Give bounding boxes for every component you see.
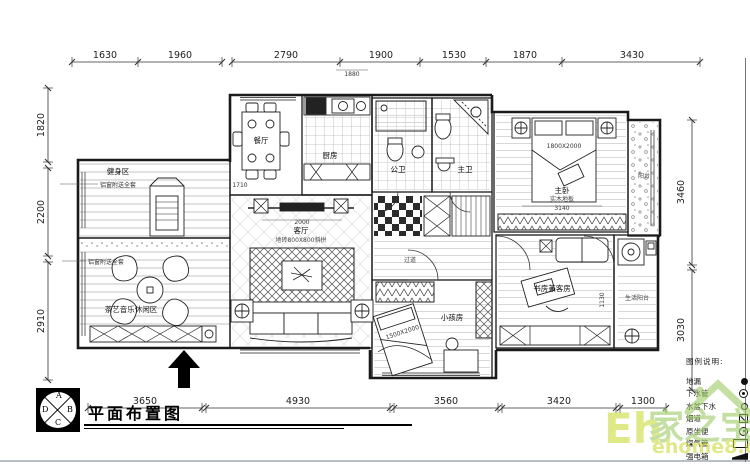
label-master-note: 实木地板 bbox=[550, 195, 574, 203]
legend-row: 地漏 bbox=[686, 375, 748, 388]
dim-bottom-3: 3420 bbox=[547, 396, 571, 407]
corridor-cabinets bbox=[424, 196, 490, 236]
power-box-icon bbox=[732, 453, 748, 460]
ann-window-note-2: 铝窗附送全套 bbox=[88, 258, 124, 266]
legend-label: 地漏 bbox=[686, 376, 701, 387]
ann-study-dim: 1130 bbox=[599, 292, 606, 307]
dim-bottom-2: 3560 bbox=[434, 396, 458, 407]
legend-label: 烟道 bbox=[686, 413, 701, 424]
title-block: A B C D bbox=[36, 388, 80, 432]
ann-master-bed-size: 1800X2000 bbox=[547, 143, 582, 150]
legend-label: 强电箱 bbox=[686, 451, 709, 462]
dim-top-6: 3430 bbox=[620, 50, 644, 61]
legend-heading: 图例说明: bbox=[686, 356, 748, 367]
legend-label: 煤气管 bbox=[686, 438, 709, 449]
floor-drain-icon bbox=[741, 378, 748, 385]
legend-row: 煤气管 bbox=[686, 438, 748, 451]
flue-icon bbox=[739, 414, 748, 423]
legend: 图例说明: 地漏 下水管 水盆下水 烟道 原坐便 煤气管 强电箱 bbox=[686, 356, 748, 463]
legend-label: 原坐便 bbox=[686, 426, 709, 437]
label-living-note: 地砖800X800斜拼 bbox=[275, 236, 326, 244]
dim-top-2: 2790 bbox=[274, 50, 298, 61]
legend-label: 下水管 bbox=[686, 388, 709, 399]
dim-top-3: 1900 bbox=[369, 50, 393, 61]
treadmill bbox=[150, 178, 184, 236]
label-utility-balcony: 生活阳台 bbox=[625, 294, 649, 302]
entrance-arrow bbox=[168, 350, 200, 388]
basin-drain-icon bbox=[741, 403, 748, 410]
label-master-bath: 主卫 bbox=[458, 164, 473, 174]
label-living: 客厅 bbox=[294, 225, 309, 235]
quadrant-b: B bbox=[67, 405, 73, 414]
ann-window-note-1: 铝窗附送全套 bbox=[100, 181, 136, 189]
dim-top-5: 1870 bbox=[513, 50, 537, 61]
label-balcony: 阳台 bbox=[638, 172, 650, 180]
dim-left-2: 2910 bbox=[36, 309, 47, 333]
ann-kitchen-width: 1880 bbox=[344, 71, 359, 78]
legend-row: 烟道 bbox=[686, 413, 748, 426]
title-underline-2 bbox=[84, 428, 344, 429]
dim-right-0: 3460 bbox=[676, 180, 687, 204]
dim-right-1: 3030 bbox=[676, 318, 687, 342]
label-kids: 小孩房 bbox=[441, 312, 464, 322]
dim-top-4: 1530 bbox=[442, 50, 466, 61]
quadrant-c: C bbox=[55, 418, 61, 427]
label-dining: 餐厅 bbox=[254, 136, 269, 145]
sheet-frame-bottom bbox=[0, 460, 750, 462]
quadrant-a: A bbox=[56, 391, 62, 400]
quadrant-d: D bbox=[42, 405, 48, 414]
label-kitchen: 厨房 bbox=[323, 150, 338, 160]
label-master-bed: 主卧 bbox=[555, 185, 570, 195]
original-toilet-icon bbox=[739, 427, 748, 436]
legend-row: 原坐便 bbox=[686, 425, 748, 438]
label-guest-bath: 公卫 bbox=[391, 165, 406, 174]
floorplan-sheet: 餐厅 厨房 健身区 茶艺音乐休闲区 客厅 地砖800X800斜拼 公卫 主卫 主… bbox=[0, 0, 750, 468]
legend-label: 水盆下水 bbox=[686, 401, 716, 412]
dim-left-0: 1820 bbox=[36, 113, 47, 137]
floorplan-drawing: 餐厅 厨房 健身区 茶艺音乐休闲区 客厅 地砖800X800斜拼 公卫 主卫 主… bbox=[0, 0, 750, 468]
sheet-title: 平面布置图 bbox=[88, 400, 183, 424]
legend-row: 水盆下水 bbox=[686, 400, 748, 413]
label-leisure: 茶艺音乐休闲区 bbox=[105, 304, 158, 314]
label-study: 书房兼客房 bbox=[533, 283, 571, 293]
dim-left-1: 2200 bbox=[36, 200, 47, 224]
title-underline bbox=[84, 424, 412, 426]
dim-top-1: 1960 bbox=[168, 50, 192, 61]
label-fitness: 健身区 bbox=[107, 166, 130, 176]
dim-bottom-4: 1300 bbox=[631, 396, 655, 407]
legend-row: 下水管 bbox=[686, 388, 748, 401]
legend-row: 强电箱 bbox=[686, 450, 748, 463]
gas-pipe-icon bbox=[733, 439, 748, 448]
ann-dining-depth: 1710 bbox=[232, 182, 247, 189]
dim-top-0: 1630 bbox=[93, 50, 117, 61]
dim-bottom-1: 4930 bbox=[286, 396, 310, 407]
label-corridor: 过道 bbox=[404, 256, 416, 264]
drain-pipe-icon bbox=[739, 389, 748, 398]
